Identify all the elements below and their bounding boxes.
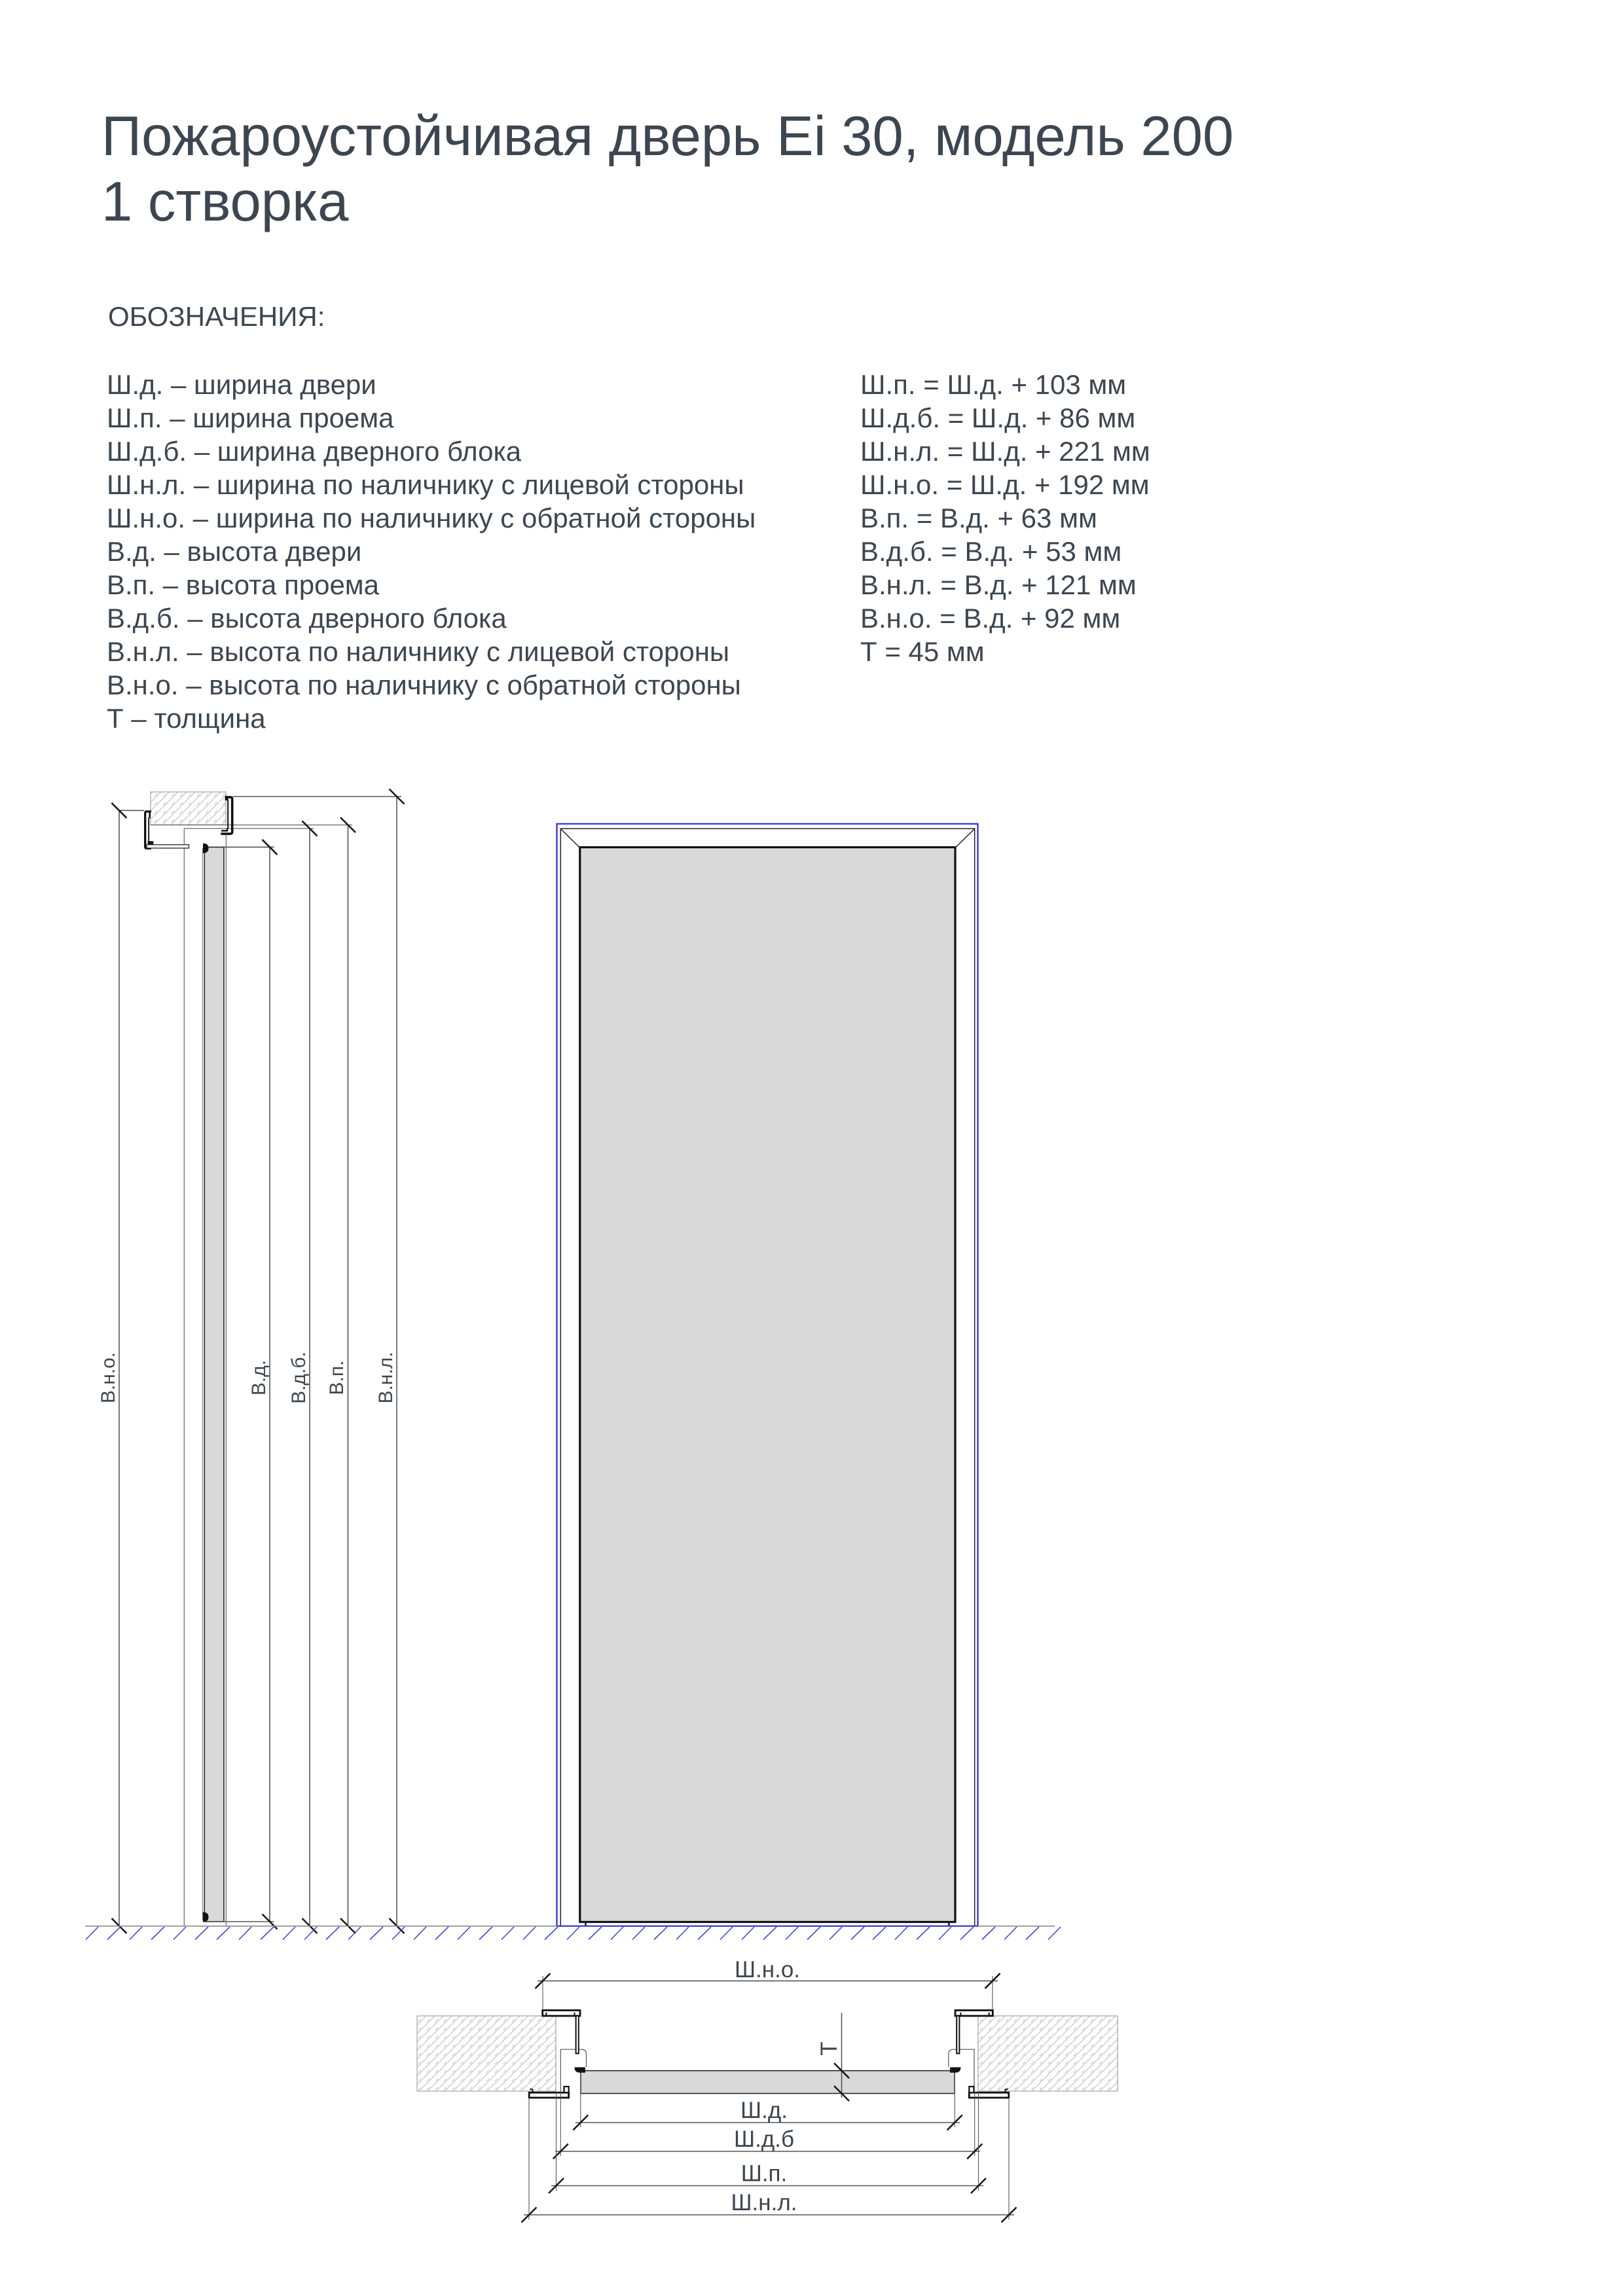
- svg-text:Ш.д.: Ш.д.: [740, 2098, 788, 2123]
- svg-text:Т: Т: [816, 2041, 842, 2055]
- svg-text:В.н.л.: В.н.л.: [375, 1352, 397, 1403]
- svg-text:В.д.б.: В.д.б.: [288, 1352, 310, 1404]
- svg-text:В.п.: В.п.: [326, 1361, 348, 1395]
- svg-text:Ш.н.л.: Ш.н.л.: [731, 2190, 797, 2215]
- svg-text:Ш.н.о.: Ш.н.о.: [735, 1957, 800, 1982]
- svg-text:В.н.о.: В.н.о.: [98, 1352, 119, 1403]
- svg-text:В.д.: В.д.: [248, 1360, 270, 1395]
- svg-text:Ш.п.: Ш.п.: [741, 2161, 787, 2187]
- svg-text:Ш.д.б: Ш.д.б: [734, 2126, 794, 2152]
